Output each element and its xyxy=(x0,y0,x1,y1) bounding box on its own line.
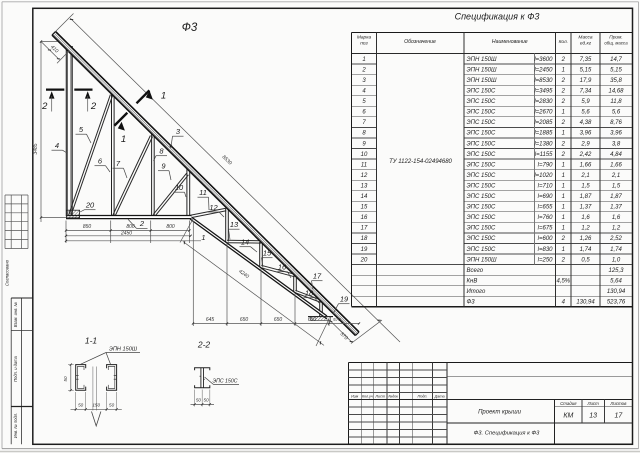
svg-text:13: 13 xyxy=(361,184,368,190)
svg-text:1: 1 xyxy=(562,194,565,200)
svg-text:18: 18 xyxy=(361,236,368,242)
svg-text:ЭПС 150С: ЭПС 150С xyxy=(467,120,497,126)
svg-text:l=760: l=760 xyxy=(538,215,554,221)
svg-text:Подп.: Подп. xyxy=(417,395,427,399)
svg-text:ЭПС 150С: ЭПС 150С xyxy=(467,215,497,221)
svg-text:Лист: Лист xyxy=(586,401,599,406)
svg-text:Согласовано: Согласовано xyxy=(5,259,10,286)
svg-text:130,94: 130,94 xyxy=(576,300,595,306)
svg-text:2: 2 xyxy=(139,219,145,228)
svg-text:КМ: КМ xyxy=(563,413,573,420)
svg-text:0,5: 0,5 xyxy=(581,257,590,263)
svg-text:1,74: 1,74 xyxy=(580,247,592,253)
svg-text:l=690: l=690 xyxy=(538,194,554,200)
svg-text:2: 2 xyxy=(561,78,566,84)
svg-text:5,64: 5,64 xyxy=(610,278,622,284)
svg-text:Спецификация к Ф3: Спецификация к Ф3 xyxy=(455,12,540,22)
svg-text:№док: №док xyxy=(388,395,398,399)
svg-text:10: 10 xyxy=(361,152,368,158)
svg-text:2,1: 2,1 xyxy=(580,173,589,179)
svg-text:ЭПС 150С: ЭПС 150С xyxy=(213,379,238,385)
svg-text:l=1020: l=1020 xyxy=(534,173,553,179)
svg-text:2: 2 xyxy=(561,152,566,158)
svg-text:1: 1 xyxy=(562,205,565,211)
svg-text:5,6: 5,6 xyxy=(612,110,621,116)
svg-text:1-1: 1-1 xyxy=(85,336,98,346)
svg-text:2: 2 xyxy=(561,141,566,147)
svg-text:Взам. инв. №: Взам. инв. № xyxy=(13,301,18,327)
svg-text:3,96: 3,96 xyxy=(580,131,592,137)
svg-text:1,66: 1,66 xyxy=(580,162,592,168)
svg-text:17: 17 xyxy=(313,272,322,281)
svg-text:l=8530: l=8530 xyxy=(534,78,553,84)
svg-text:1,6: 1,6 xyxy=(581,215,590,221)
svg-text:l=2670: l=2670 xyxy=(534,110,553,116)
svg-text:850: 850 xyxy=(83,224,92,230)
svg-text:1,66: 1,66 xyxy=(610,162,622,168)
svg-text:Обозначение: Обозначение xyxy=(404,39,436,45)
svg-text:ЭПС 150С: ЭПС 150С xyxy=(467,99,497,105)
svg-text:1,2: 1,2 xyxy=(581,226,590,232)
svg-text:1: 1 xyxy=(562,110,565,116)
svg-text:1: 1 xyxy=(562,162,565,168)
svg-text:650: 650 xyxy=(274,317,283,323)
svg-text:2: 2 xyxy=(90,101,97,112)
svg-text:ЭПС 150С: ЭПС 150С xyxy=(467,173,497,179)
svg-text:1,2: 1,2 xyxy=(612,226,621,232)
svg-text:50: 50 xyxy=(196,397,202,402)
svg-text:1,6: 1,6 xyxy=(612,215,621,221)
svg-text:Наименование: Наименование xyxy=(492,39,528,45)
svg-text:Всего: Всего xyxy=(467,268,484,274)
svg-text:50: 50 xyxy=(63,376,68,382)
svg-text:800: 800 xyxy=(166,224,175,230)
svg-text:2-2: 2-2 xyxy=(197,340,211,350)
svg-text:15: 15 xyxy=(263,249,272,258)
svg-text:14,68: 14,68 xyxy=(608,89,624,95)
svg-text:2,52: 2,52 xyxy=(609,236,622,242)
svg-text:50: 50 xyxy=(78,402,84,407)
svg-text:l=675: l=675 xyxy=(538,226,554,232)
svg-text:4: 4 xyxy=(55,141,59,150)
svg-text:Кол.: Кол. xyxy=(559,39,568,45)
svg-text:645: 645 xyxy=(206,317,215,323)
svg-text:20: 20 xyxy=(360,257,368,263)
svg-text:l=1380: l=1380 xyxy=(534,141,553,147)
svg-text:50: 50 xyxy=(109,402,115,407)
svg-text:ЭПС 150С: ЭПС 150С xyxy=(467,194,497,200)
svg-text:2: 2 xyxy=(561,89,566,95)
svg-text:15: 15 xyxy=(361,205,368,211)
svg-text:ЭПС 150С: ЭПС 150С xyxy=(467,162,497,168)
svg-text:ЭПС 150С: ЭПС 150С xyxy=(467,226,497,232)
svg-text:17: 17 xyxy=(361,226,368,232)
svg-text:1,87: 1,87 xyxy=(580,194,592,200)
svg-text:2: 2 xyxy=(361,67,366,73)
svg-text:2: 2 xyxy=(561,99,566,105)
svg-text:11,8: 11,8 xyxy=(610,99,622,105)
svg-text:ЭПС 150С: ЭПС 150С xyxy=(467,110,497,116)
svg-text:1: 1 xyxy=(562,184,565,190)
svg-text:3,96: 3,96 xyxy=(610,131,622,137)
svg-text:l=1885: l=1885 xyxy=(534,131,553,137)
svg-text:Подп. и дата: Подп. и дата xyxy=(13,355,18,381)
svg-text:3,8: 3,8 xyxy=(612,141,621,147)
svg-text:20: 20 xyxy=(85,201,95,210)
svg-text:2: 2 xyxy=(561,257,566,263)
svg-text:1: 1 xyxy=(562,131,565,137)
svg-text:1,37: 1,37 xyxy=(580,205,592,211)
svg-text:Итого: Итого xyxy=(467,289,486,295)
svg-text:Марка: Марка xyxy=(357,35,372,41)
svg-text:10: 10 xyxy=(175,183,184,192)
svg-text:650: 650 xyxy=(240,317,249,323)
svg-text:5,15: 5,15 xyxy=(580,67,592,73)
svg-text:l=3495: l=3495 xyxy=(534,89,553,95)
svg-text:1: 1 xyxy=(562,226,565,232)
svg-text:Масса: Масса xyxy=(578,35,593,41)
svg-text:2: 2 xyxy=(561,120,566,126)
svg-text:4,5%: 4,5% xyxy=(556,278,570,284)
svg-text:Дата: Дата xyxy=(434,395,445,399)
svg-text:Листов: Листов xyxy=(609,401,627,406)
svg-text:1,74: 1,74 xyxy=(610,247,622,253)
svg-text:l=1155: l=1155 xyxy=(535,152,553,158)
svg-text:1: 1 xyxy=(562,247,565,253)
svg-text:17: 17 xyxy=(615,413,624,420)
svg-text:17,9: 17,9 xyxy=(580,78,592,84)
svg-text:Ф3: Ф3 xyxy=(467,300,476,306)
svg-text:l=790: l=790 xyxy=(538,162,554,168)
svg-text:4,38: 4,38 xyxy=(580,120,592,126)
svg-text:l=655: l=655 xyxy=(538,205,554,211)
svg-text:1: 1 xyxy=(562,173,565,179)
svg-text:16: 16 xyxy=(361,215,368,221)
svg-text:12: 12 xyxy=(361,173,368,179)
svg-text:13: 13 xyxy=(589,413,597,420)
svg-text:Изм: Изм xyxy=(351,395,358,399)
svg-text:Кол.уч: Кол.уч xyxy=(362,395,373,399)
svg-text:1,37: 1,37 xyxy=(610,205,622,211)
svg-text:ЭПС 150С: ЭПС 150С xyxy=(467,141,497,147)
svg-text:2,42: 2,42 xyxy=(579,152,592,158)
svg-text:ЭПН 150Ш: ЭПН 150Ш xyxy=(109,347,138,353)
svg-text:КнВ: КнВ xyxy=(467,278,478,284)
svg-text:Ф3. Спецификация к Ф3: Ф3. Спецификация к Ф3 xyxy=(474,431,540,437)
svg-text:4,84: 4,84 xyxy=(610,152,622,158)
svg-text:5,15: 5,15 xyxy=(610,67,622,73)
svg-text:570: 570 xyxy=(333,317,341,322)
svg-text:11: 11 xyxy=(199,188,207,197)
svg-text:1: 1 xyxy=(562,215,565,221)
svg-text:l=710: l=710 xyxy=(538,184,554,190)
svg-text:3485: 3485 xyxy=(33,143,39,154)
svg-text:1: 1 xyxy=(161,91,166,102)
svg-text:16: 16 xyxy=(278,263,287,272)
svg-text:11: 11 xyxy=(361,162,367,168)
svg-text:Лист: Лист xyxy=(374,395,385,399)
svg-text:35,8: 35,8 xyxy=(610,78,622,84)
svg-text:2,1: 2,1 xyxy=(611,173,620,179)
svg-text:14: 14 xyxy=(241,238,249,247)
svg-text:ЭПН 150Ш: ЭПН 150Ш xyxy=(467,78,498,84)
svg-text:650: 650 xyxy=(308,317,317,323)
svg-text:ед.кг: ед.кг xyxy=(580,41,592,47)
svg-text:130,94: 130,94 xyxy=(607,289,626,295)
svg-text:5,9: 5,9 xyxy=(581,99,590,105)
svg-text:ТУ 1122-154-02494680: ТУ 1122-154-02494680 xyxy=(389,159,452,165)
svg-text:5,6: 5,6 xyxy=(581,110,590,116)
svg-text:1,87: 1,87 xyxy=(610,194,622,200)
svg-text:8,76: 8,76 xyxy=(610,120,622,126)
svg-text:l=2450: l=2450 xyxy=(534,67,553,73)
svg-text:ЭПС 150С: ЭПС 150С xyxy=(467,131,497,137)
svg-text:ЭПС 150С: ЭПС 150С xyxy=(467,152,497,158)
svg-text:Инв. № подл.: Инв. № подл. xyxy=(13,413,18,438)
svg-text:13: 13 xyxy=(230,220,239,229)
svg-text:14,7: 14,7 xyxy=(610,57,622,63)
svg-text:1,26: 1,26 xyxy=(580,236,592,242)
svg-text:ЭПН 150Ш: ЭПН 150Ш xyxy=(467,257,498,263)
svg-text:2: 2 xyxy=(561,57,566,63)
svg-text:ЭПС 150С: ЭПС 150С xyxy=(467,205,497,211)
svg-text:1,0: 1,0 xyxy=(612,257,621,263)
svg-text:523,76: 523,76 xyxy=(607,300,626,306)
svg-text:125,3: 125,3 xyxy=(608,268,624,274)
svg-text:ЭПН 150Ш: ЭПН 150Ш xyxy=(467,57,498,63)
svg-text:общ. масса: общ. масса xyxy=(604,41,628,46)
svg-text:ЭПН 150Ш: ЭПН 150Ш xyxy=(467,67,498,73)
svg-text:ЭПС 150С: ЭПС 150С xyxy=(467,236,497,242)
svg-text:19: 19 xyxy=(340,295,349,304)
svg-text:14: 14 xyxy=(361,194,368,200)
svg-text:l=250: l=250 xyxy=(538,257,554,263)
svg-text:l=3600: l=3600 xyxy=(534,57,553,63)
svg-text:ЭПС 150С: ЭПС 150С xyxy=(467,184,497,190)
svg-text:Ф3: Ф3 xyxy=(182,22,198,34)
svg-text:1: 1 xyxy=(201,233,205,242)
svg-text:поз: поз xyxy=(360,42,368,47)
svg-text:19: 19 xyxy=(361,247,368,253)
svg-text:1,5: 1,5 xyxy=(581,184,590,190)
svg-text:150: 150 xyxy=(92,402,100,407)
svg-text:Стадия: Стадия xyxy=(560,401,577,406)
svg-text:800: 800 xyxy=(126,224,135,230)
svg-text:1: 1 xyxy=(562,67,565,73)
svg-text:Проект крыши: Проект крыши xyxy=(478,410,521,416)
svg-text:7,34: 7,34 xyxy=(580,89,592,95)
svg-text:12: 12 xyxy=(209,203,218,212)
svg-text:2: 2 xyxy=(561,236,566,242)
svg-text:7,35: 7,35 xyxy=(580,57,592,63)
svg-text:1: 1 xyxy=(121,134,126,145)
svg-text:l=2085: l=2085 xyxy=(534,120,553,126)
svg-text:2: 2 xyxy=(41,101,48,112)
svg-text:2450: 2450 xyxy=(120,230,132,236)
svg-text:2,9: 2,9 xyxy=(580,141,590,147)
svg-text:50: 50 xyxy=(204,397,210,402)
svg-text:1: 1 xyxy=(362,57,365,63)
svg-text:l=2830: l=2830 xyxy=(534,99,553,105)
svg-text:18: 18 xyxy=(305,289,314,298)
svg-text:l=600: l=600 xyxy=(538,236,554,242)
svg-text:ЭПС 150С: ЭПС 150С xyxy=(467,89,497,95)
svg-text:l=830: l=830 xyxy=(538,247,554,253)
svg-text:ЭПС 150С: ЭПС 150С xyxy=(467,247,497,253)
svg-text:1,5: 1,5 xyxy=(612,184,621,190)
